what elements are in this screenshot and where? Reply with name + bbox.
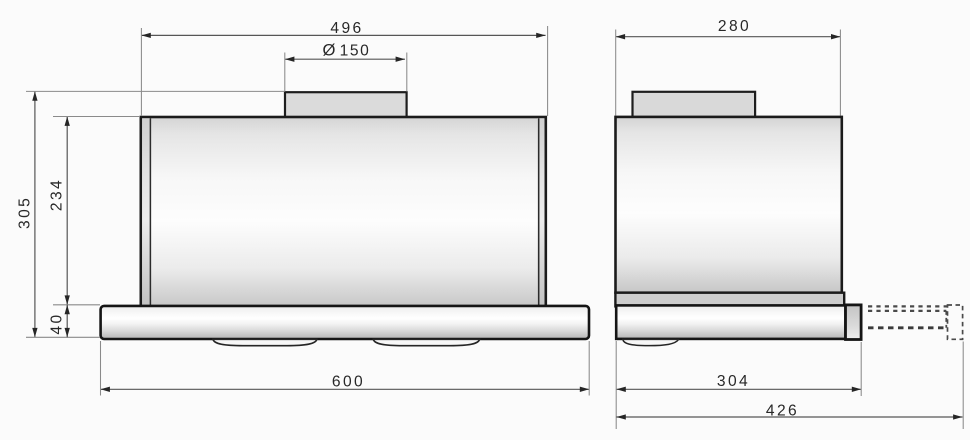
svg-text:Ø150: Ø150 [323,40,371,59]
svg-text:234: 234 [49,178,66,211]
svg-text:600: 600 [332,373,365,390]
svg-text:40: 40 [49,312,66,334]
svg-text:496: 496 [330,20,363,37]
svg-text:305: 305 [17,196,34,229]
svg-text:304: 304 [717,373,750,390]
svg-text:280: 280 [718,18,751,35]
